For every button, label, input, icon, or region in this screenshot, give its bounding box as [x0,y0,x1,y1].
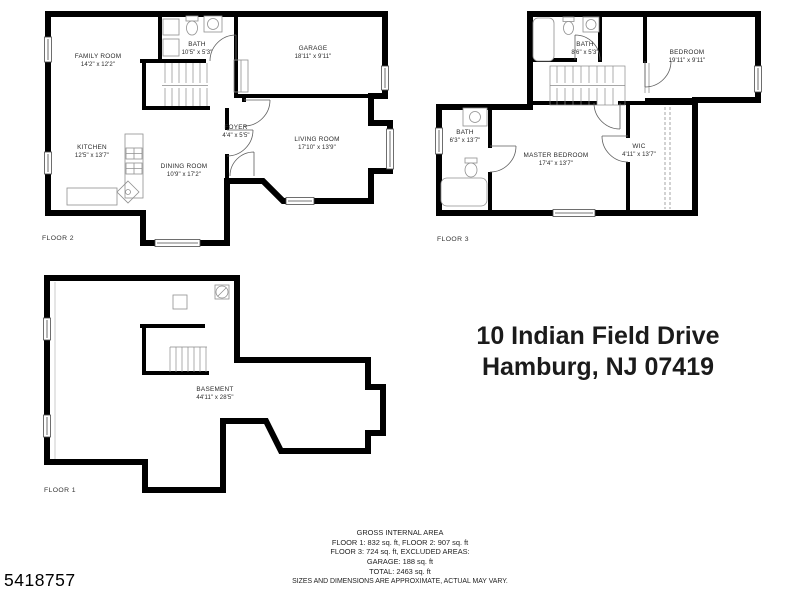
area-summary-line: FLOOR 3: 724 sq. ft, EXCLUDED AREAS: [250,547,550,557]
area-summary-title: GROSS INTERNAL AREA [250,528,550,538]
room-label-family-room: FAMILY ROOM [75,53,122,60]
floor-1-plan: BASEMENT 44'11" x 28'5" FLOOR 1 [36,272,396,504]
room-dims-basement: 44'11" x 28'5" [196,395,233,401]
room-dims-family-room: 14'2" x 12'2" [81,62,115,68]
listing-id: 5418757 [4,570,76,591]
room-dims-wic: 4'11" x 13'7" [622,152,656,158]
bathtub-icon [441,178,487,206]
room-dims-garage: 18'11" x 9'11" [295,54,332,60]
room-label-kitchen: KITCHEN [77,144,107,151]
dryer-icon [163,39,179,56]
room-dims-foyer: 4'4" x 5'5" [222,133,249,139]
area-summary-disclaimer: SIZES AND DIMENSIONS ARE APPROXIMATE, AC… [250,577,550,587]
sink-icon [208,19,219,30]
toilet-icon [465,163,477,177]
sink-icon [586,20,596,30]
room-label-garage: GARAGE [299,45,328,52]
floor-2-stairs [162,63,208,106]
room-dims-bath-lower: 6'3" x 13'7" [450,138,481,144]
floor-3-plan: BATH 8'6" x 5'3" BEDROOM 19'11" x 9'11" … [425,6,770,248]
address-line-1: 10 Indian Field Drive [440,321,756,352]
room-label-living-room: LIVING ROOM [294,136,339,143]
room-label-bath: BATH [188,41,206,48]
area-summary-line: GARAGE: 188 sq. ft [250,557,550,567]
floor-1-stairs [170,347,207,372]
floor-2-fixtures [67,16,248,205]
room-dims-bedroom: 19'11" x 9'11" [669,58,706,64]
toilet-icon [564,22,574,35]
toilet-icon [186,16,198,21]
kitchen-counter [67,188,117,205]
room-label-foyer: FOYER [224,124,247,131]
room-label-dining-room: DINING ROOM [161,163,208,170]
floor-2-plan: FAMILY ROOM 14'2" x 12'2" BATH 10'5" x 5… [36,6,396,248]
address-line-2: Hamburg, NJ 07419 [440,352,756,383]
room-dims-living-room: 17'10" x 13'9" [298,145,336,151]
toilet-icon [465,158,477,163]
floor-3-label: FLOOR 3 [437,236,469,243]
floor-3-stairs [550,66,625,105]
floor-1-interior-walls [142,326,207,373]
room-label-master-bedroom: MASTER BEDROOM [524,152,589,159]
toilet-icon [187,21,198,35]
floor-1-fixtures [173,285,229,309]
area-summary-line: FLOOR 1: 832 sq. ft, FLOOR 2: 907 sq. ft [250,538,550,548]
property-address: 10 Indian Field Drive Hamburg, NJ 07419 [440,321,756,383]
floor-2-label: FLOOR 2 [42,235,74,242]
utility-box [173,295,187,309]
room-dims-master-bedroom: 17'4" x 13'7" [539,161,573,167]
sliding-door [645,63,649,93]
room-label-wic: WIC [632,143,645,150]
floor-1-walls [47,278,383,490]
closet-rod [665,107,670,209]
room-label-bath-upper: BATH [576,41,594,48]
room-label-bedroom: BEDROOM [670,49,705,56]
floor-3-fixtures [441,17,670,209]
area-summary-line: TOTAL: 2463 sq. ft [250,567,550,577]
kitchen-island [117,181,139,203]
floor-1-exterior-wall [47,278,383,490]
room-label-bath-lower: BATH [456,129,474,136]
area-summary: GROSS INTERNAL AREA FLOOR 1: 832 sq. ft,… [250,528,550,586]
floor-1-label: FLOOR 1 [44,487,76,494]
room-dims-kitchen: 12'5" x 13'7" [75,153,109,159]
toilet-icon [563,17,574,22]
room-dims-bath: 10'5" x 5'3" [182,50,213,56]
floor-2-exterior-wall [48,14,390,243]
floor-2-doors [210,35,270,176]
room-dims-bath-upper: 8'6" x 5'3" [571,50,598,56]
sink-icon [470,112,481,123]
room-dims-dining-room: 10'9" x 17'2" [167,172,201,178]
floor-1-room-labels: BASEMENT 44'11" x 28'5" [196,386,233,401]
floor-2-walls [48,14,390,243]
bathtub-icon [533,18,554,61]
washer-icon [163,19,179,35]
room-label-basement: BASEMENT [196,386,233,393]
